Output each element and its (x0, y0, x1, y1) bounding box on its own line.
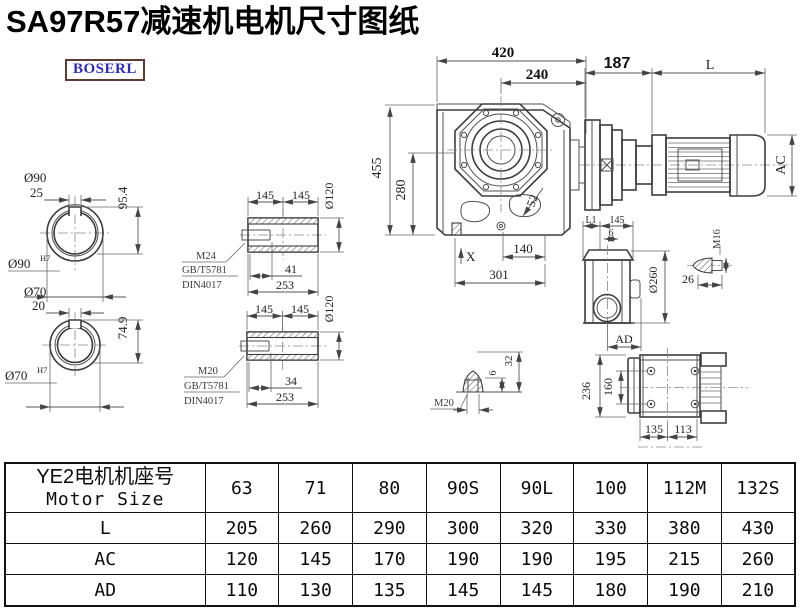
frame-size: 100 (574, 463, 648, 513)
dim-label: AC (774, 155, 789, 174)
dim-label: 253 (276, 278, 294, 292)
dim-label: 455 (370, 158, 385, 179)
dim-label: Ø260 (646, 267, 660, 294)
dim-label: 135 (645, 422, 663, 436)
cell: 120 (205, 544, 279, 575)
dim-label: L (706, 58, 715, 73)
dim-label: 160 (601, 378, 615, 396)
cell: 170 (353, 544, 427, 575)
cell: 210 (721, 575, 795, 607)
cell: 215 (648, 544, 722, 575)
dim-label: Ø90 (24, 170, 46, 185)
dim-label: 253 (276, 390, 294, 404)
header-en: Motor Size (6, 489, 205, 511)
table-row-L: L 205 260 290 300 320 330 380 430 (5, 513, 795, 544)
bushing-m20-view: 145 145 Ø120 M20 GB/T5781 DIN4017 34 253 (184, 296, 344, 408)
dim-label: 6 (488, 371, 499, 376)
dim-label: 34 (285, 374, 297, 388)
cell: 430 (721, 513, 795, 544)
oil-position-mark: X (466, 249, 476, 264)
frame-size: 63 (205, 463, 279, 513)
frame-size: 71 (279, 463, 353, 513)
dim-label: 145 (291, 302, 309, 316)
cell: 110 (205, 575, 279, 607)
dim-label: 145 (256, 188, 274, 202)
row-label: AD (5, 575, 205, 607)
cell: 195 (574, 544, 648, 575)
dim-label: 301 (489, 267, 509, 282)
row-label: AC (5, 544, 205, 575)
dim-tolerance: H7 (37, 365, 47, 375)
cell: 145 (500, 575, 574, 607)
cell: 135 (353, 575, 427, 607)
bushing-m24-view: 145 145 Ø120 M24 GB/T5781 DIN4017 41 253 (182, 183, 344, 296)
standard-label: DIN4017 (182, 280, 222, 291)
cell: 130 (279, 575, 353, 607)
cell: 380 (648, 513, 722, 544)
gearbox-top-view: 236 160 135 113 (579, 348, 748, 447)
frame-size: 90L (500, 463, 574, 513)
standard-label: GB/T5781 (182, 265, 227, 276)
cell: 190 (500, 544, 574, 575)
cell: 330 (574, 513, 648, 544)
dim-label: 26 (682, 272, 694, 286)
cell: 190 (426, 544, 500, 575)
dim-label: L1 (585, 215, 596, 226)
dim-label: 145 (255, 302, 273, 316)
cell: 300 (426, 513, 500, 544)
cell: 205 (205, 513, 279, 544)
dim-label: AD (615, 332, 633, 346)
cell: 190 (648, 575, 722, 607)
standard-label: DIN4017 (184, 396, 224, 407)
dim-label: Ø90 (8, 256, 30, 271)
table-row-AC: AC 120 145 170 190 190 195 215 260 (5, 544, 795, 575)
shaft-90-section-view: Ø90 25 95.4 Ø90 H7 (8, 170, 143, 302)
header-cn: YE2电机机座号 (6, 465, 205, 489)
cell: 320 (500, 513, 574, 544)
thread-label: M20 (434, 398, 454, 409)
header-motor-size: YE2电机机座号 Motor Size (5, 463, 205, 513)
cell: 180 (574, 575, 648, 607)
frame-size: 80 (353, 463, 427, 513)
cell: 290 (353, 513, 427, 544)
cell: 260 (279, 513, 353, 544)
dim-label: 32 (503, 356, 515, 367)
motor-side-view: 187 L AC (580, 55, 797, 210)
page-title: SA97R57减速机电机尺寸图纸 (6, 0, 419, 41)
dim-label: 280 (394, 180, 409, 201)
cell: 145 (279, 544, 353, 575)
dim-label: 113 (674, 422, 692, 436)
dim-label: 140 (513, 241, 533, 256)
dim-label: 20 (32, 298, 45, 313)
motor-dimension-table: YE2电机机座号 Motor Size 63 71 80 90S 90L 100… (4, 462, 796, 607)
standard-label: GB/T5781 (184, 381, 229, 392)
dim-label: 420 (492, 45, 515, 61)
bolt-m16-detail: M16 26 (682, 229, 732, 289)
row-label: L (5, 513, 205, 544)
dim-label: 145 (610, 215, 625, 226)
plug-m20-detail: M20 6 32 (430, 352, 523, 414)
thread-label: M20 (198, 366, 218, 377)
gearbox-front-view: 420 240 455 280 52 140 301 X (370, 45, 586, 287)
dim-label: Ø120 (322, 296, 336, 323)
drawing-sheet: SA97R57减速机电机尺寸图纸 BOSERL Ø90 (0, 0, 800, 613)
dim-label: 95.4 (115, 186, 130, 209)
thread-label: M16 (712, 229, 723, 249)
dim-label: 145 (292, 188, 310, 202)
dim-label: Ø70 (24, 284, 46, 299)
technical-drawing: Ø90 25 95.4 Ø90 H7 (0, 40, 800, 463)
shaft-70-section-view: Ø70 20 74.9 Ø70 H7 (5, 284, 143, 412)
dim-label: Ø120 (322, 183, 336, 210)
cell: 145 (426, 575, 500, 607)
table-row-AD: AD 110 130 135 145 145 180 190 210 (5, 575, 795, 607)
gearbox-output-side-view: L1 145 6 Ø260 AD (583, 215, 670, 351)
frame-size: 90S (426, 463, 500, 513)
dim-label: 74.9 (115, 317, 130, 340)
thread-label: M24 (196, 251, 217, 262)
dim-label: 41 (285, 262, 297, 276)
dim-label: 187 (604, 55, 631, 72)
dim-tolerance: H7 (40, 253, 50, 263)
dim-label: 25 (30, 185, 43, 200)
dim-label: 6 (609, 228, 614, 239)
dim-label: 236 (579, 382, 593, 400)
frame-size: 132S (721, 463, 795, 513)
dim-label: Ø70 (5, 368, 27, 383)
table-header-row: YE2电机机座号 Motor Size 63 71 80 90S 90L 100… (5, 463, 795, 513)
cell: 260 (721, 544, 795, 575)
frame-size: 112M (648, 463, 722, 513)
dim-label: 240 (526, 67, 549, 83)
